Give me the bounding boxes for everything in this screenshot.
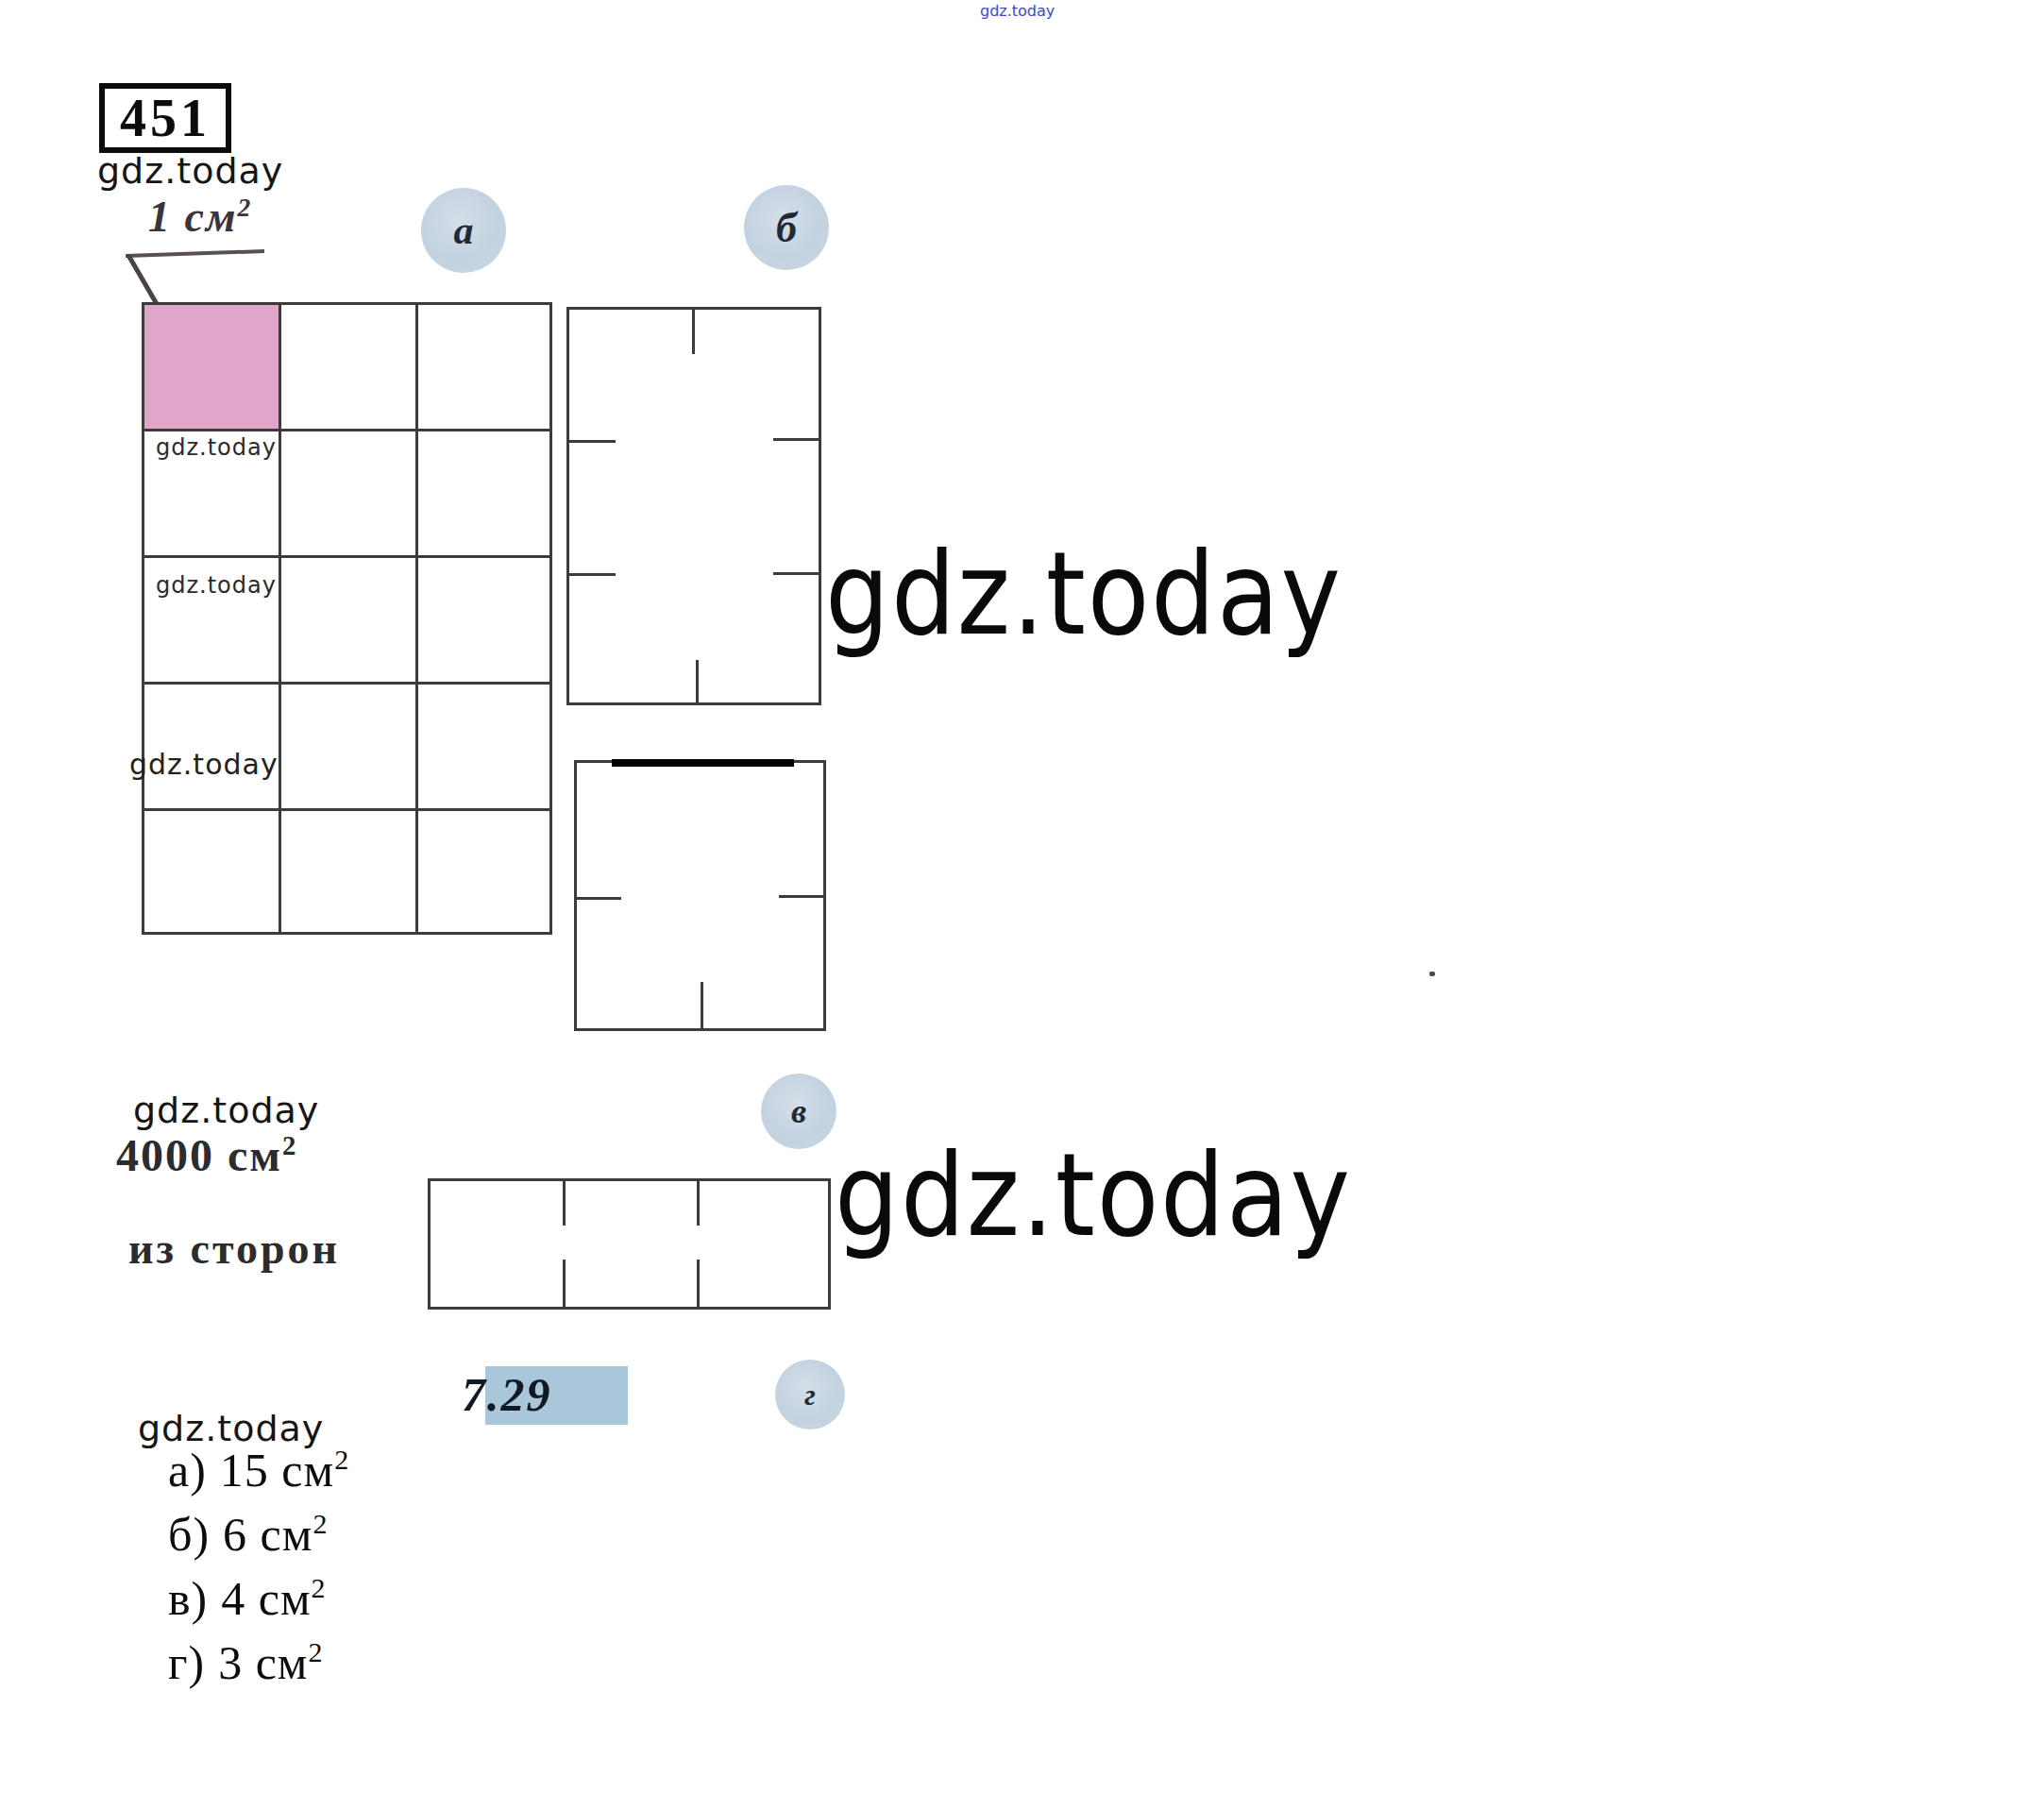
sides-text-label: из сторон bbox=[128, 1224, 340, 1274]
figure-ref-number: 7.29 bbox=[462, 1367, 552, 1422]
answer-g-label: г) bbox=[168, 1636, 205, 1689]
answer-b-label: б) bbox=[168, 1508, 210, 1561]
watermark-large-2: gdz.today bbox=[835, 1138, 1352, 1253]
answer-g-exponent: 2 bbox=[309, 1636, 324, 1667]
thick-top-segment bbox=[612, 759, 794, 767]
figure-label-circle-g: г bbox=[775, 1360, 845, 1429]
figure-label-circle-b: б bbox=[744, 185, 829, 270]
watermark-above-area: gdz.today bbox=[133, 1092, 319, 1128]
answer-v-exponent: 2 bbox=[312, 1572, 327, 1603]
answer-v: в)4 см2 bbox=[168, 1571, 327, 1626]
grid-column-line bbox=[415, 305, 418, 932]
figure-b-rectangle bbox=[566, 307, 821, 705]
figure-v-square bbox=[574, 760, 826, 1031]
figure-label-circle-v: в bbox=[761, 1074, 836, 1149]
figure-label-b: б bbox=[776, 204, 797, 252]
tick-mark-left-lower bbox=[569, 573, 616, 576]
tick-mark-right-upper bbox=[773, 438, 819, 441]
grid-row-line bbox=[144, 682, 549, 685]
answer-g-value: 3 см bbox=[218, 1636, 308, 1689]
area-value: 4000 см bbox=[116, 1130, 282, 1180]
answer-b: б)6 см2 bbox=[168, 1507, 328, 1562]
divider-top-segment bbox=[563, 1181, 566, 1226]
watermark-grid-2: gdz.today bbox=[156, 574, 277, 597]
answer-a-value: 15 см bbox=[220, 1444, 334, 1497]
grid-column-line bbox=[279, 305, 281, 932]
answer-a-label: а) bbox=[168, 1444, 207, 1497]
tick-mark-left-upper bbox=[569, 440, 616, 443]
answer-b-exponent: 2 bbox=[313, 1508, 328, 1539]
scan-speck bbox=[1429, 972, 1435, 976]
answer-a-exponent: 2 bbox=[334, 1444, 349, 1475]
figure-label-a: а bbox=[454, 208, 474, 253]
unit-square-shaded-cell bbox=[144, 305, 281, 431]
tick-mark-left bbox=[577, 897, 621, 900]
area-value-label: 4000 см2 bbox=[116, 1129, 297, 1181]
tick-mark-bottom bbox=[701, 982, 703, 1028]
tick-mark-right bbox=[779, 895, 823, 898]
divider-bottom-segment bbox=[697, 1260, 700, 1307]
area-exponent: 2 bbox=[282, 1130, 297, 1160]
watermark-above-answers: gdz.today bbox=[138, 1411, 324, 1446]
grid-row-line bbox=[144, 555, 549, 558]
divider-bottom-segment bbox=[563, 1260, 566, 1307]
answer-a: а)15 см2 bbox=[168, 1443, 349, 1497]
answer-v-label: в) bbox=[168, 1572, 208, 1625]
answer-v-value: 4 см bbox=[221, 1572, 311, 1625]
watermark-grid-1: gdz.today bbox=[156, 436, 277, 459]
tick-mark-bottom bbox=[696, 660, 699, 702]
figure-g-rectangle bbox=[428, 1178, 831, 1310]
figure-label-v: в bbox=[791, 1091, 806, 1131]
answer-g: г)3 см2 bbox=[168, 1635, 324, 1690]
tick-mark-right-lower bbox=[773, 572, 819, 575]
grid-row-line bbox=[144, 429, 549, 431]
answer-b-value: 6 см bbox=[223, 1508, 313, 1561]
watermark-grid-3: gdz.today bbox=[129, 751, 279, 779]
divider-top-segment bbox=[697, 1181, 700, 1226]
watermark-top: gdz.today bbox=[980, 4, 1055, 19]
grid-row-line bbox=[144, 808, 549, 811]
tick-mark-top bbox=[692, 310, 695, 354]
figure-a-grid bbox=[142, 302, 552, 935]
textbook-page: gdz.today 451 gdz.today 1 см2 а б gdz.to… bbox=[0, 0, 2044, 1793]
figure-label-g: г bbox=[804, 1378, 816, 1412]
figure-label-circle-a: а bbox=[421, 188, 506, 273]
watermark-large-1: gdz.today bbox=[825, 536, 1343, 651]
